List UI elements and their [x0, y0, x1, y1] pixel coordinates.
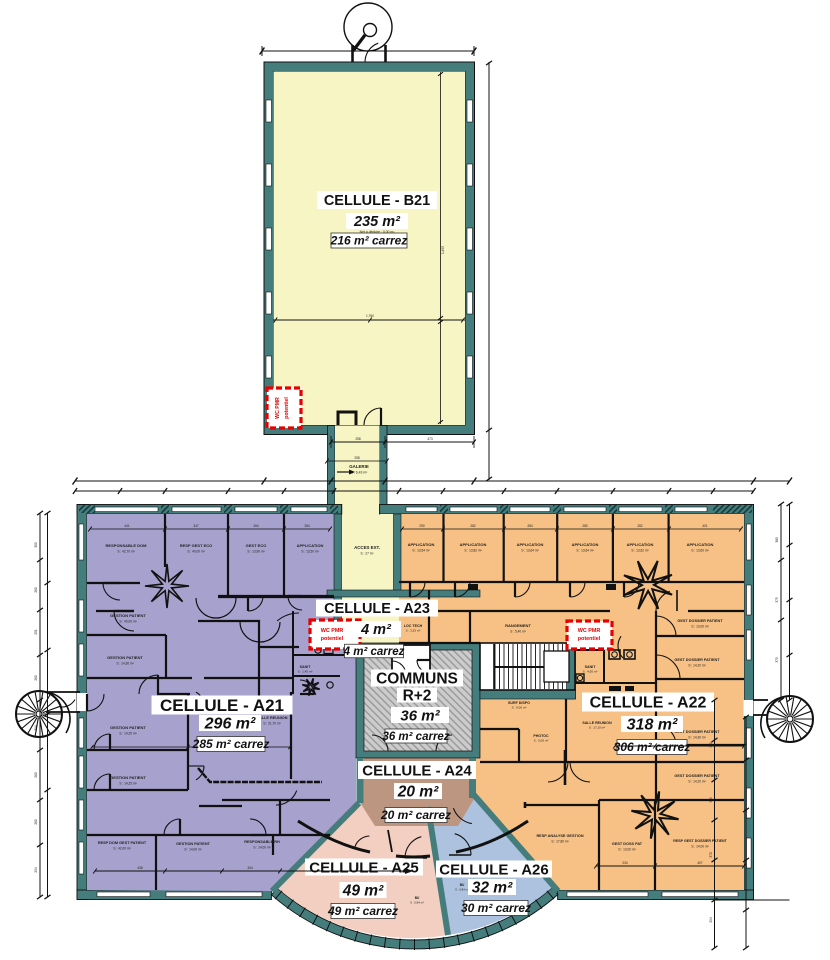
svg-text:S : 9,00 m²: S : 9,00 m²	[512, 706, 527, 710]
svg-text:S : 17,80 m²: S : 17,80 m²	[551, 840, 568, 844]
svg-text:4 m² carrez: 4 m² carrez	[343, 646, 405, 658]
svg-text:375: 375	[775, 597, 779, 603]
svg-text:294: 294	[34, 867, 38, 873]
svg-text:S : 42,70 m²: S : 42,70 m²	[117, 550, 134, 554]
svg-text:S : 14,20 m²: S : 14,20 m²	[688, 664, 705, 668]
svg-text:CELLULE - A22: CELLULE - A22	[590, 695, 707, 712]
svg-text:375: 375	[775, 657, 779, 663]
svg-text:COMMUNS: COMMUNS	[376, 670, 458, 687]
svg-text:ACCES EXT.: ACCES EXT.	[354, 545, 380, 550]
svg-text:APPLICATION: APPLICATION	[460, 542, 487, 547]
svg-text:282: 282	[470, 524, 476, 528]
svg-text:GEST DOSSIER PATIENT: GEST DOSSIER PATIENT	[674, 774, 720, 778]
svg-text:GESTION PATIENT: GESTION PATIENT	[110, 775, 146, 780]
svg-text:4 m²: 4 m²	[360, 622, 392, 638]
svg-text:RESPONSABLE RH: RESPONSABLE RH	[244, 840, 280, 844]
svg-text:S : 14,30 m²: S : 14,30 m²	[688, 736, 705, 740]
svg-text:407: 407	[697, 861, 703, 865]
svg-text:370: 370	[709, 852, 713, 858]
svg-text:258: 258	[355, 437, 361, 441]
svg-text:GEST DOSSIER PATIENT: GEST DOSSIER PATIENT	[677, 619, 723, 623]
svg-text:RESP DOM GEST PATIENT: RESP DOM GEST PATIENT	[98, 841, 147, 845]
svg-text:S : 5,05 m²: S : 5,05 m²	[534, 739, 549, 743]
svg-text:401: 401	[702, 524, 708, 528]
svg-text:S : 0,84 m²: S : 0,84 m²	[410, 901, 424, 905]
svg-text:234: 234	[622, 861, 628, 865]
svg-text:300: 300	[34, 542, 38, 548]
svg-text:S : 14,00 m²: S : 14,00 m²	[691, 845, 708, 849]
svg-text:S : 14,00 m²: S : 14,00 m²	[184, 848, 201, 852]
svg-text:RESP GEST ECO: RESP GEST ECO	[180, 543, 213, 548]
svg-text:CELLULE - A24: CELLULE - A24	[362, 762, 472, 779]
svg-text:360: 360	[709, 742, 713, 748]
svg-text:30 m² carrez: 30 m² carrez	[461, 901, 531, 915]
svg-text:WC PMR: WC PMR	[275, 397, 281, 419]
svg-text:RESP GEST DOSSIER PATIENT: RESP GEST DOSSIER PATIENT	[673, 839, 727, 843]
svg-text:36 m²: 36 m²	[400, 707, 440, 724]
svg-text:284: 284	[527, 524, 533, 528]
svg-text:potentiel: potentiel	[321, 636, 344, 642]
svg-text:S : 14,20 m²: S : 14,20 m²	[688, 780, 705, 784]
svg-text:216 m² carrez: 216 m² carrez	[330, 234, 408, 248]
svg-text:306 m² carrez: 306 m² carrez	[614, 740, 691, 754]
svg-text:235 m²: 235 m²	[353, 214, 401, 230]
svg-text:BU: BU	[460, 883, 465, 887]
svg-text:WC PMR: WC PMR	[578, 628, 601, 634]
svg-text:APPLICATION: APPLICATION	[517, 542, 544, 547]
svg-text:S : 0,84 m²: S : 0,84 m²	[455, 888, 469, 892]
svg-text:20 m² carrez: 20 m² carrez	[380, 808, 451, 822]
svg-text:S : 40,00 m²: S : 40,00 m²	[119, 620, 136, 624]
svg-text:318 m²: 318 m²	[627, 717, 678, 734]
svg-text:S : 13,50 m²: S : 13,50 m²	[301, 550, 318, 554]
svg-text:S : 13,90 m²: S : 13,90 m²	[247, 550, 264, 554]
svg-text:380: 380	[775, 537, 779, 543]
svg-text:BU: BU	[415, 896, 420, 900]
svg-text:APPLICATION: APPLICATION	[297, 543, 324, 548]
svg-text:LOC TECH: LOC TECH	[404, 624, 423, 628]
svg-text:SANIT: SANIT	[300, 665, 312, 669]
svg-text:SALLE REUNION: SALLE REUNION	[582, 721, 612, 725]
svg-text:RESPONSABLE DOM: RESPONSABLE DOM	[106, 543, 148, 548]
svg-text:260: 260	[34, 772, 38, 778]
svg-text:SANIT: SANIT	[585, 665, 597, 669]
svg-text:280: 280	[582, 524, 588, 528]
svg-text:S : 5,40 m²: S : 5,40 m²	[510, 630, 526, 634]
svg-text:36 m² carrez: 36 m² carrez	[382, 731, 449, 743]
svg-text:438: 438	[137, 866, 143, 870]
svg-text:GEST ECO: GEST ECO	[246, 543, 267, 548]
svg-text:APPLICATION: APPLICATION	[687, 542, 714, 547]
svg-text:SALLE REUNION: SALLE REUNION	[256, 716, 287, 720]
svg-text:251: 251	[34, 629, 38, 635]
svg-text:473: 473	[427, 437, 433, 441]
svg-text:294: 294	[709, 917, 713, 923]
svg-text:260: 260	[34, 587, 38, 593]
svg-text:32 m²: 32 m²	[472, 879, 513, 896]
svg-text:S : 27 m²: S : 27 m²	[361, 552, 374, 556]
svg-text:GEST DOSS PAT: GEST DOSS PAT	[612, 842, 643, 846]
svg-text:S : 1,45 m²: S : 1,45 m²	[298, 670, 313, 674]
svg-text:344: 344	[247, 866, 253, 870]
svg-text:282: 282	[637, 524, 643, 528]
svg-text:SURF DISPO: SURF DISPO	[508, 701, 530, 705]
svg-text:264: 264	[253, 524, 259, 528]
svg-text:S : 13,82 m²: S : 13,82 m²	[464, 549, 481, 553]
svg-text:S : 21,70 m²: S : 21,70 m²	[263, 722, 280, 726]
svg-text:260: 260	[34, 819, 38, 825]
svg-text:S : 13,00 m²: S : 13,00 m²	[618, 848, 635, 852]
svg-text:294: 294	[34, 725, 38, 731]
svg-text:S : 13,54 m²: S : 13,54 m²	[412, 549, 429, 553]
svg-text:GALERIE: GALERIE	[349, 464, 369, 469]
svg-text:375: 375	[709, 797, 713, 803]
svg-text:S : 14,36 m²: S : 14,36 m²	[116, 662, 133, 666]
svg-text:potentiel: potentiel	[578, 636, 601, 642]
svg-text:258: 258	[354, 456, 360, 460]
svg-text:S : 14,25 m²: S : 14,25 m²	[119, 782, 136, 786]
svg-text:RESP ANALYSE GESTION: RESP ANALYSE GESTION	[536, 834, 583, 838]
svg-text:S : 13,64 m²: S : 13,64 m²	[576, 549, 593, 553]
svg-text:GESTION PATIENT: GESTION PATIENT	[107, 655, 143, 660]
svg-text:PHOTOC: PHOTOC	[533, 734, 549, 738]
svg-text:347: 347	[193, 524, 199, 528]
svg-text:20 m²: 20 m²	[397, 783, 439, 800]
svg-text:GEST DOSSIER PATIENT: GEST DOSSIER PATIENT	[674, 658, 720, 662]
svg-text:S : 17,10 m²: S : 17,10 m²	[589, 726, 605, 730]
svg-text:S : 13,62 m²: S : 13,62 m²	[631, 549, 648, 553]
svg-text:R+2: R+2	[403, 687, 432, 704]
svg-text:GESTION PATIENT: GESTION PATIENT	[110, 725, 146, 730]
svg-text:296 m²: 296 m²	[204, 716, 256, 733]
svg-text:284: 284	[304, 524, 310, 528]
svg-text:1,760: 1,760	[366, 314, 374, 318]
svg-text:S : 40,00 m²: S : 40,00 m²	[187, 550, 204, 554]
svg-text:WC PMR: WC PMR	[321, 628, 344, 634]
svg-text:S : 14,00 m²: S : 14,00 m²	[253, 846, 270, 850]
svg-text:GESTION PATIENT: GESTION PATIENT	[110, 613, 146, 618]
svg-text:49 m² carrez: 49 m² carrez	[327, 904, 398, 918]
svg-text:potentiel: potentiel	[284, 397, 290, 419]
svg-text:290: 290	[419, 524, 425, 528]
svg-text:S : 13,60 m²: S : 13,60 m²	[691, 549, 708, 553]
svg-text:S : 42,00 m²: S : 42,00 m²	[113, 847, 130, 851]
svg-text:CELLULE - A26: CELLULE - A26	[439, 861, 548, 878]
svg-text:260: 260	[34, 675, 38, 681]
svg-text:285 m² carrez: 285 m² carrez	[192, 737, 270, 751]
svg-text:CELLULE - A25: CELLULE - A25	[309, 859, 418, 876]
svg-text:S : 13,64 m²: S : 13,64 m²	[521, 549, 538, 553]
svg-text:CELLULE - A21: CELLULE - A21	[160, 696, 284, 715]
svg-text:S : 13,00 m²: S : 13,00 m²	[691, 625, 708, 629]
svg-text:S : 4,50 m²: S : 4,50 m²	[583, 670, 598, 674]
svg-text:CELLULE - B21: CELLULE - B21	[324, 193, 430, 209]
svg-text:GESTION PATIENT: GESTION PATIENT	[176, 842, 211, 846]
svg-text:S : 14,25 m²: S : 14,25 m²	[119, 732, 136, 736]
svg-text:APPLICATION: APPLICATION	[572, 542, 599, 547]
svg-text:CELLULE - A23: CELLULE - A23	[324, 601, 430, 617]
svg-text:APPLICATION: APPLICATION	[627, 542, 654, 547]
svg-text:49 m²: 49 m²	[342, 882, 384, 899]
svg-text:APPLICATION: APPLICATION	[408, 542, 435, 547]
svg-text:1,455: 1,455	[441, 246, 445, 254]
svg-text:441: 441	[124, 524, 130, 528]
svg-text:RANGEMENT: RANGEMENT	[505, 623, 531, 628]
svg-text:S : 3,25 m²: S : 3,25 m²	[406, 629, 421, 633]
